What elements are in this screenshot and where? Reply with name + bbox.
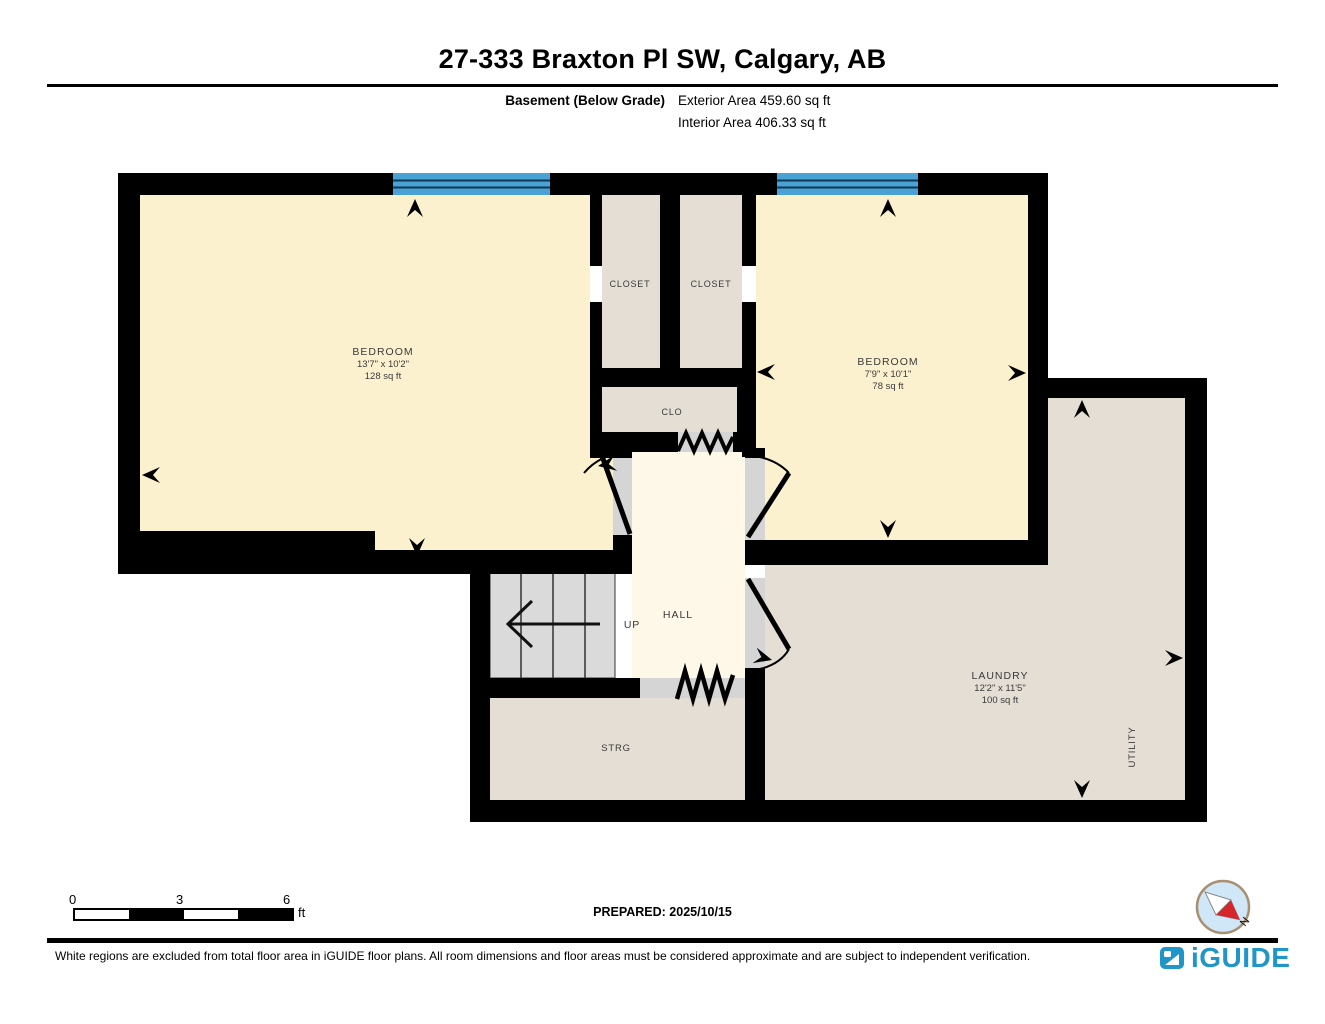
bedroom-1-area: 128 sq ft [365,371,402,382]
bedroom-2-dimensions: 7'9" x 10'1" [865,369,912,380]
prepared-date: PREPARED: 2025/10/15 [0,905,1325,919]
iguide-logo: iGUIDE [1158,942,1290,974]
iguide-logo-icon [1158,944,1186,972]
stairs-up-label: UP [624,619,640,631]
utility-name: UTILITY [1127,727,1138,768]
closet-2-name: CLOSET [691,279,732,289]
hall-floor [632,448,745,678]
staircase [490,570,615,678]
strg-name: STRG [601,743,631,754]
floorplan-drawing: BEDROOM 13'7" x 10'2" 128 sq ft BEDROOM … [0,0,1325,1024]
hall-name: HALL [663,609,693,621]
clo-name: CLO [662,407,683,417]
laundry-area: 100 sq ft [982,695,1019,706]
window-1 [393,173,550,195]
bedroom-1-name: BEDROOM [352,346,413,358]
utility-floor [1048,398,1185,565]
window-2 [777,173,918,195]
compass: N [1194,878,1258,942]
iguide-logo-text: iGUIDE [1191,942,1290,974]
bedroom-2-area: 78 sq ft [872,381,904,392]
laundry-name: LAUNDRY [972,670,1029,682]
floorplan-page: 27-333 Braxton Pl SW, Calgary, AB Baseme… [0,0,1325,1024]
bedroom-2-name: BEDROOM [857,356,918,368]
closet-1-name: CLOSET [610,279,651,289]
bedroom-1-dimensions: 13'7" x 10'2" [357,359,409,370]
footer-divider [47,938,1278,943]
laundry-dimensions: 12'2" x 11'5" [974,683,1025,694]
disclaimer-text: White regions are excluded from total fl… [55,949,1030,963]
